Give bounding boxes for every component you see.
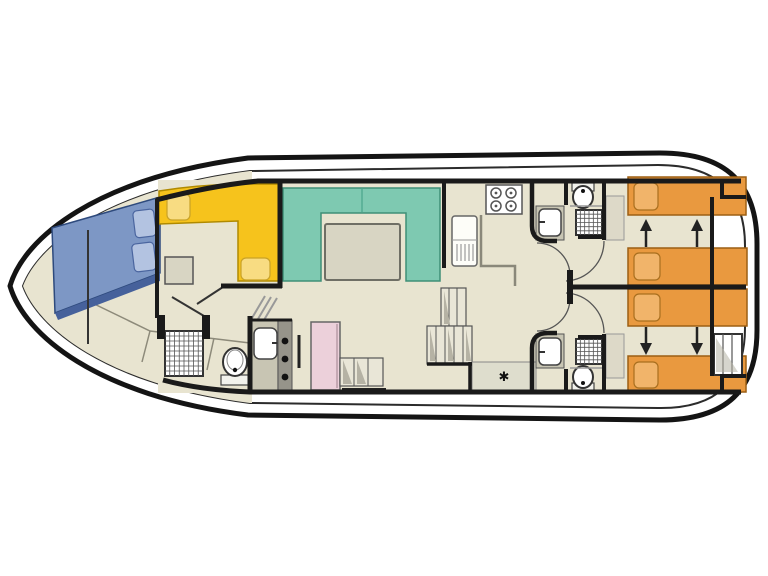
strip-dot-3 <box>282 374 289 381</box>
toilet-flush-dot <box>581 381 585 385</box>
saloon-table <box>325 224 400 280</box>
heater-star-icon: ✱ <box>499 369 510 384</box>
burner-3-dot <box>495 205 498 208</box>
wardrobe-top <box>606 196 624 240</box>
bed-bottom-mid-pillow <box>634 294 660 321</box>
ensuite-top-toilet <box>572 183 594 208</box>
bed-top-wall-pillow <box>634 183 658 210</box>
v-berth-pillow-1 <box>132 209 156 238</box>
burner-1-dot <box>495 192 498 195</box>
ensuite-bottom-toilet <box>572 366 594 391</box>
boat-floorplan-canvas: ✱ <box>0 0 768 576</box>
dinette-cushion-2 <box>241 258 270 280</box>
dinette-table <box>165 257 193 284</box>
fridge <box>452 216 477 266</box>
toilet-flush-dot <box>581 189 585 193</box>
bed-top-mid-pillow <box>634 253 660 280</box>
stove-top <box>486 185 522 214</box>
floorplan-svg: ✱ <box>0 0 768 576</box>
bed-bottom-wall-pillow <box>634 362 658 388</box>
pink-dresser <box>311 322 340 390</box>
toilet-flush-dot <box>233 368 237 372</box>
front-toilet <box>221 348 249 385</box>
saloon <box>283 188 440 281</box>
burner-4-dot <box>510 205 513 208</box>
stove <box>486 185 522 214</box>
strip-dot-2 <box>282 356 289 363</box>
wardrobe-bottom <box>606 334 624 378</box>
v-berth-pillow-2 <box>131 242 156 272</box>
strip-dot-1 <box>282 338 289 345</box>
stern-ladder <box>714 334 742 375</box>
burner-2-dot <box>510 192 513 195</box>
